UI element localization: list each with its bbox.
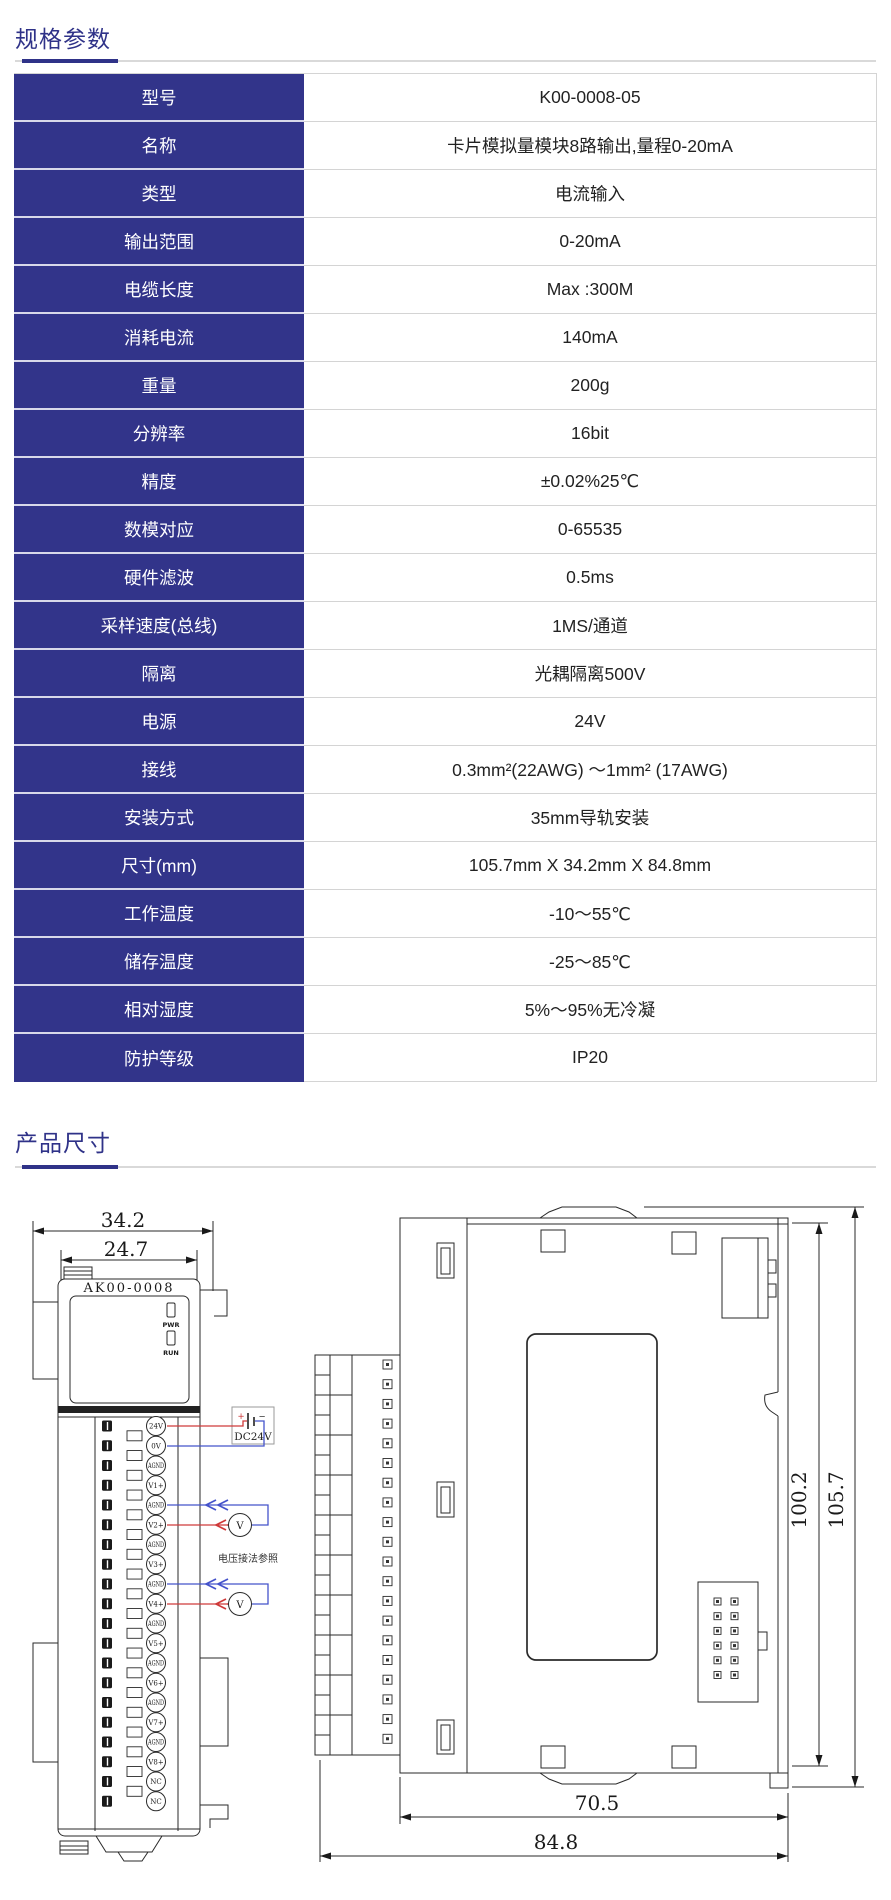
spec-row: 消耗电流 140mA <box>14 314 877 362</box>
spec-value-cell: 0-65535 <box>304 506 877 554</box>
spec-row: 电缆长度 Max :300M <box>14 266 877 314</box>
dim-100-2: 100.2 <box>787 1471 811 1528</box>
run-led-label: RUN <box>163 1349 179 1357</box>
side-dim-depth-inner: 70.5 <box>400 1777 788 1862</box>
dims-section-title: 产品尺寸 <box>15 1124 111 1158</box>
side-dim-height-inner: 100.2 <box>787 1223 828 1766</box>
terminal-label: V8+ <box>147 1758 164 1766</box>
spec-label-cell: 消耗电流 <box>14 314 304 362</box>
spec-row: 尺寸(mm) 105.7mm X 34.2mm X 84.8mm <box>14 842 877 890</box>
spec-value-cell: -10～55℃ <box>304 890 877 938</box>
dim-24-7: 24.7 <box>104 1237 149 1261</box>
right-hook-lower <box>200 1805 228 1828</box>
mount-square <box>541 1746 565 1768</box>
bottom-screw-block <box>60 1841 88 1854</box>
spec-value-cell: 105.7mm X 34.2mm X 84.8mm <box>304 842 877 890</box>
spec-label-cell: 型号 <box>14 74 304 122</box>
blue-wires <box>167 1421 268 1604</box>
mount-square <box>541 1230 565 1252</box>
spec-value-cell: -25～85℃ <box>304 938 877 986</box>
spec-row: 精度 ±0.02%25℃ <box>14 458 877 506</box>
front-view-drawing: 34.2 24.7 AK00-0008 PWR RUN <box>0 1195 300 1900</box>
spec-value-cell: 0-20mA <box>304 218 877 266</box>
terminal-strip: 24V0VAGNDV1+AGNDV2+AGNDV3+AGNDV4+AGNDV5+… <box>102 1417 166 1811</box>
bottom-clip <box>96 1836 162 1852</box>
terminal-label: AGND <box>147 1541 164 1549</box>
side-outline <box>400 1218 788 1773</box>
side-body <box>400 1207 788 1788</box>
spec-value-cell: 0.3mm²(22AWG) ～1mm² (17AWG) <box>304 746 877 794</box>
left-tab-lower <box>33 1643 58 1762</box>
spec-row: 类型 电流输入 <box>14 170 877 218</box>
spec-label-cell: 安装方式 <box>14 794 304 842</box>
spec-row: 型号 K00-0008-05 <box>14 74 877 122</box>
spec-label-cell: 尺寸(mm) <box>14 842 304 890</box>
spec-value-cell: 0.5ms <box>304 554 877 602</box>
spec-label-cell: 储存温度 <box>14 938 304 986</box>
spec-row: 工作温度 -10～55℃ <box>14 890 877 938</box>
side-dim-depth-outer: 84.8 <box>320 1760 788 1862</box>
dim-84-8: 84.8 <box>534 1830 579 1854</box>
terminal-label: NC <box>150 1778 161 1786</box>
side-dim-height-outer: 105.7 <box>644 1207 864 1787</box>
spec-row: 采样速度(总线) 1MS/通道 <box>14 602 877 650</box>
top-right-connector <box>722 1238 768 1318</box>
terminal-label: V4+ <box>147 1600 164 1608</box>
terminal-label: V1+ <box>147 1482 164 1490</box>
voltmeter-label: V <box>235 1521 244 1532</box>
spec-label-cell: 电缆长度 <box>14 266 304 314</box>
spec-label-cell: 工作温度 <box>14 890 304 938</box>
spec-label-cell: 数模对应 <box>14 506 304 554</box>
dim-105-7: 105.7 <box>824 1471 848 1528</box>
spec-value-cell: 卡片模拟量模块8路输出,量程0-20mA <box>304 122 877 170</box>
right-rail-hook <box>200 1658 228 1746</box>
spec-row: 隔离 光耦隔离500V <box>14 650 877 698</box>
front-module-body: AK00-0008 PWR RUN <box>33 1267 228 1861</box>
spec-value-cell: 24V <box>304 698 877 746</box>
spec-value-cell: 1MS/通道 <box>304 602 877 650</box>
terminal-label: V3+ <box>147 1561 164 1569</box>
spec-label-cell: 相对湿度 <box>14 986 304 1034</box>
spec-row: 相对湿度 5%～95%无冷凝 <box>14 986 877 1034</box>
spec-table: 型号 K00-0008-05 名称 卡片模拟量模块8路输出,量程0-20mA 类… <box>14 73 877 1082</box>
specs-divider <box>15 60 876 62</box>
spec-value-cell: 200g <box>304 362 877 410</box>
spec-label-cell: 重量 <box>14 362 304 410</box>
wiring-note: 电压接法参照 <box>218 1552 278 1565</box>
terminal-label: AGND <box>147 1660 164 1668</box>
spec-label-cell: 类型 <box>14 170 304 218</box>
spec-label-cell: 输出范围 <box>14 218 304 266</box>
din-rail-hook <box>765 1392 778 1416</box>
spec-value-cell: 16bit <box>304 410 877 458</box>
right-hook-upper <box>200 1290 227 1316</box>
spec-row: 重量 200g <box>14 362 877 410</box>
terminal-label: AGND <box>147 1620 164 1628</box>
bottom-clip-inner <box>118 1852 148 1861</box>
terminal-label: V2+ <box>147 1521 164 1529</box>
spec-value-cell: 电流输入 <box>304 170 877 218</box>
spec-label-cell: 采样速度(总线) <box>14 602 304 650</box>
terminal-label: V6+ <box>147 1679 164 1687</box>
spec-row: 接线 0.3mm²(22AWG) ～1mm² (17AWG) <box>14 746 877 794</box>
din-rail-foot <box>770 1773 788 1788</box>
pin-connector <box>698 1582 758 1702</box>
run-led-icon <box>167 1331 175 1345</box>
side-center-panel <box>527 1334 657 1660</box>
side-view-drawing: 100.2 105.7 70.5 84.8 <box>300 1180 891 1900</box>
spec-value-cell: Max :300M <box>304 266 877 314</box>
spec-value-cell: K00-0008-05 <box>304 74 877 122</box>
terminal-label: AGND <box>147 1502 164 1510</box>
spec-row: 分辨率 16bit <box>14 410 877 458</box>
spec-row: 防护等级 IP20 <box>14 1034 877 1082</box>
spec-value-cell: IP20 <box>304 1034 877 1082</box>
spec-label-cell: 接线 <box>14 746 304 794</box>
spec-value-cell: 140mA <box>304 314 877 362</box>
spec-row: 数模对应 0-65535 <box>14 506 877 554</box>
voltmeter-label: V <box>235 1600 244 1611</box>
power-box-label: DC24V <box>234 1431 272 1443</box>
spec-label-cell: 精度 <box>14 458 304 506</box>
spec-value-cell: 35mm导轨安装 <box>304 794 877 842</box>
bottom-hump <box>540 1773 637 1784</box>
module-outline <box>58 1279 200 1836</box>
spec-value-cell: ±0.02%25℃ <box>304 458 877 506</box>
dims-divider <box>15 1166 876 1168</box>
spec-value-cell: 5%～95%无冷凝 <box>304 986 877 1034</box>
page: { "section_specs": { "title": "规格参数" }, … <box>0 0 891 1900</box>
separator-band <box>58 1406 200 1413</box>
dim-34-2: 34.2 <box>101 1208 146 1232</box>
terminal-label: AGND <box>147 1699 164 1707</box>
terminal-label: V5+ <box>147 1640 164 1648</box>
terminal-label: 24V <box>149 1423 164 1431</box>
mount-square <box>672 1232 696 1254</box>
terminal-label: AGND <box>147 1739 164 1747</box>
side-terminal-block <box>315 1355 400 1755</box>
spec-label-cell: 硬件滤波 <box>14 554 304 602</box>
module-model-label: AK00-0008 <box>82 1281 174 1296</box>
dims-divider-accent <box>22 1165 118 1169</box>
dim-70-5: 70.5 <box>575 1791 620 1815</box>
specs-section-title: 规格参数 <box>15 20 111 54</box>
top-hump <box>540 1207 637 1218</box>
terminal-label: NC <box>150 1798 161 1806</box>
spec-label-cell: 名称 <box>14 122 304 170</box>
spec-row: 电源 24V <box>14 698 877 746</box>
spec-row: 安装方式 35mm导轨安装 <box>14 794 877 842</box>
spec-row: 储存温度 -25～85℃ <box>14 938 877 986</box>
terminal-label: 0V <box>151 1442 161 1450</box>
spec-label-cell: 分辨率 <box>14 410 304 458</box>
spec-label-cell: 隔离 <box>14 650 304 698</box>
spec-label-cell: 防护等级 <box>14 1034 304 1082</box>
pwr-led-label: PWR <box>163 1321 180 1329</box>
mount-square <box>672 1746 696 1768</box>
spec-label-cell: 电源 <box>14 698 304 746</box>
specs-divider-accent <box>22 59 118 63</box>
spec-row: 名称 卡片模拟量模块8路输出,量程0-20mA <box>14 122 877 170</box>
pin-grid <box>714 1598 738 1679</box>
front-dim-inner: 24.7 <box>61 1237 197 1280</box>
terminal-label: V7+ <box>147 1719 164 1727</box>
left-tab-upper <box>33 1302 58 1379</box>
spec-row: 输出范围 0-20mA <box>14 218 877 266</box>
terminal-label: AGND <box>147 1462 164 1470</box>
pwr-led-icon <box>167 1303 175 1317</box>
top-clip <box>64 1267 92 1279</box>
spec-value-cell: 光耦隔离500V <box>304 650 877 698</box>
terminal-label: AGND <box>147 1581 164 1589</box>
spec-row: 硬件滤波 0.5ms <box>14 554 877 602</box>
